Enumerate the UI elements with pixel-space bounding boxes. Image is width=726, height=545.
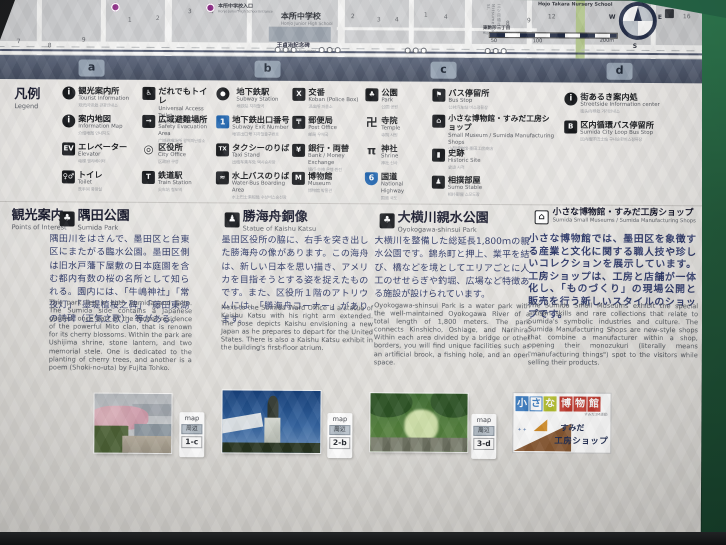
legend-jp: 地下鉄出口番号 — [232, 115, 289, 125]
legend-sub: 邮局 우체국 — [308, 132, 337, 137]
map-block-number: 4 — [395, 16, 399, 23]
section-oyokogawa-title: 大横川親水公園 Oyokogawa-shinsui Park — [398, 211, 489, 233]
oyokogawa-text-en: Oyokogawa-shinsui Park is a water park w… — [374, 301, 530, 367]
section-small-museums-title: 小さな博物館・すみだ工房ショップ Sumida Small Museums / … — [553, 208, 696, 224]
station-entrance-dots — [319, 47, 341, 53]
legend-en: Safety Evacuation Area — [158, 124, 214, 138]
legend-sub: 出租车乘车处 택시승차장 — [232, 160, 289, 165]
legend-item-elevator: EVエレベーターElevator电梯 엘리베이터 — [62, 142, 138, 164]
legend-jp: トイレ — [78, 170, 103, 180]
legend-jp: 公園 — [381, 88, 397, 98]
legend-item-train-station: T鉄道駅Train Station火车站 철도역 — [142, 171, 214, 193]
legend-jp: 小さな博物館・すみだ工房ショップ — [448, 115, 556, 134]
accessible-toilet-icon: ♿ — [142, 87, 155, 100]
map-block-number: 12 — [548, 13, 556, 20]
photo-rocks — [370, 437, 467, 452]
legend-sub: 公园 공원 — [381, 105, 397, 110]
legend-jp: 博物館 — [308, 172, 333, 182]
legend-en: Water-Bus Boarding Area — [232, 181, 290, 195]
legend-jp: 区内循環バス停留所 — [580, 121, 654, 131]
section-title-en: Oyokogawa-shinsui Park — [398, 225, 489, 234]
legend-sub: 介绍地图 안내지도 — [78, 131, 122, 136]
legend-jp: タクシーのりば — [232, 143, 289, 153]
legend-jp: 国道 — [381, 172, 427, 182]
legend-item-park: ♣公園Park公园 공원 — [365, 88, 427, 110]
map-ref-cell: 1-c — [181, 436, 202, 448]
map-reference-panel: map 周辺 2-b — [327, 413, 352, 458]
map-ref-word: map — [179, 414, 204, 422]
map-block-number: 2 — [351, 13, 355, 20]
tourist-information-icon: i — [62, 86, 75, 99]
oyokogawa-park-icon: ♣ — [380, 213, 395, 228]
legend-sub: 区内循环巴士站 구내순환버스정류장 — [580, 137, 654, 142]
oyokogawa-park-photo — [370, 393, 467, 452]
subway-station-icon — [216, 87, 229, 100]
small-museums-logo: 小 さ な 博 物 館 すみだ3M運動 ✦✦ すみだ 工房ショップ — [513, 393, 610, 453]
legend-item-temple: 卍寺院Temple寺院 사원 — [365, 116, 427, 138]
map-block-number: 8 — [48, 42, 52, 49]
legend-item-small-museum: ⌂小さな博物館・すみだ工房ショップSmall Museum / Sumida M… — [432, 115, 556, 152]
legend-item-city-office: ◎区役所City Office区政府 구청 — [142, 143, 214, 165]
legend-sub: 街头向导处 거리안내소 — [580, 109, 659, 115]
legend-item-toilet: ♀♂トイレToilet洗手间 화장실 — [62, 170, 138, 192]
legend-en: Small Museum / Sumida Manufacturing Shop… — [448, 133, 556, 147]
legend-title: 凡例 Legend — [14, 88, 40, 110]
map-label-jp: 本所中学校 — [281, 12, 321, 21]
legend-sub: 博物馆 박물관 — [308, 188, 333, 193]
map-column-tab-d: d — [607, 63, 633, 80]
legend-jp: エレベーター — [78, 142, 127, 152]
sumida-park-text-en: This park lies in both Sumida and Taito.… — [49, 298, 192, 372]
compass-west-label: W — [609, 14, 616, 21]
legend-sub: 地铁站 지하철역 — [236, 104, 278, 109]
legend-jp: 案内地図 — [78, 114, 122, 124]
station-entrance-dots — [275, 47, 297, 53]
evacuation-area-icon: → — [142, 115, 155, 128]
logo-brand-sumida: すみだ — [560, 422, 584, 433]
legend-item-taxi-stand: TXタクシーのりばTaxi Stand出租车乘车处 택시승차장 — [216, 143, 290, 165]
kaishu-statue-photo — [222, 390, 320, 453]
sumida-park-icon: ♣ — [60, 211, 75, 226]
legend-sub: 水上巴士乘船处 수상버스승선장 — [232, 194, 290, 199]
map-block-number: 7 — [17, 38, 21, 45]
legend-item-bank: ¥銀行・両替Bank / Money Exchange银行·兑换 은행·환전 — [292, 144, 362, 172]
poi-title: 観光案内 Points of Interest — [12, 209, 67, 231]
photo-base-greenery — [222, 442, 320, 453]
legend-jp: 交番 — [308, 88, 358, 98]
map-ref-word: map — [327, 415, 352, 423]
post-office-icon: 〒 — [292, 116, 305, 129]
legend-sub: 派出所 파출소 — [308, 104, 358, 109]
legend-sub: 电梯 엘리베이터 — [78, 159, 127, 164]
legend-item-subway-station: 地下鉄駅Subway Station地铁站 지하철역 — [216, 87, 290, 109]
legend-jp: 水上バスのりば — [232, 171, 290, 181]
legend-item-information-map: i案内地図Information Map介绍地图 안내지도 — [62, 114, 138, 136]
map-block-number: 9 — [527, 17, 531, 24]
legend-item-museum: M博物館Museum博物馆 박물관 — [292, 172, 362, 194]
legend-jp: 街あるき案内処 — [580, 93, 659, 103]
photo-canopy — [370, 393, 412, 417]
map-ref-cell: 2-b — [329, 437, 350, 449]
information-map-icon: i — [62, 114, 75, 127]
station-entrance-dots — [485, 48, 507, 54]
legend-en: Bank / Money Exchange — [308, 153, 362, 167]
legend-item-shrine: π神社Shrine神社 신사 — [365, 144, 427, 166]
legend-sub: 区政府 구청 — [158, 159, 186, 164]
legend-item-evacuation-area: →広域避難場所Safety Evacuation Area广域避难场所 광역피난… — [142, 115, 214, 143]
water-bus-icon: ≈ — [216, 171, 229, 184]
legend-title-jp: 凡例 — [14, 88, 40, 102]
map-scale-bar — [489, 32, 618, 38]
map-ref-area-badge: 周辺 — [181, 424, 202, 434]
legend-jp: 郵便局 — [308, 116, 337, 126]
legend-jp: バス停留所 — [448, 89, 489, 99]
loop-bus-stop-icon: B — [564, 120, 577, 133]
sumida-park-photo — [94, 394, 171, 453]
photo-statue-figure — [267, 396, 278, 419]
logo-brand-koubou: 工房ショップ — [554, 434, 608, 446]
bus-stop-icon: ⚑ — [432, 89, 445, 102]
kaishu-statue-icon: ♟ — [225, 212, 240, 227]
map-ref-area-badge: 周辺 — [473, 426, 494, 436]
map-block-number: 2 — [156, 15, 160, 22]
logo-tile: 小 — [515, 396, 528, 411]
legend-en: National Highway — [381, 182, 427, 196]
compass-needle — [634, 7, 642, 21]
compass-south-label: S — [633, 43, 637, 50]
historic-site-icon: ▮ — [432, 149, 445, 162]
logo-orange-triangle — [533, 419, 547, 431]
station-entrance-dots — [405, 47, 427, 53]
elevator-icon: EV — [62, 142, 75, 155]
map-block-number: 16 — [683, 13, 691, 20]
scale-label-200m: 200m — [600, 38, 614, 44]
map-label-en: Honjo Junior High School — [281, 22, 333, 27]
map-label-en: Hojo Takara Nursery School — [538, 2, 613, 7]
map-ref-area-badge: 周辺 — [329, 425, 350, 435]
legend-sub: 火车站 철도역 — [158, 187, 192, 192]
map-label-school-entrance: 本所中学校入口 Honjo Junior High School Entranc… — [218, 2, 273, 13]
street-information-icon: i — [564, 92, 577, 105]
legend-item-koban: X交番Koban (Police Box)派出所 파출소 — [292, 88, 362, 110]
legend-item-loop-bus-stop: B区内循環バス停留所Sumida City Loop Bus Stop区内循环巴… — [564, 120, 694, 142]
temple-icon: 卍 — [365, 116, 378, 129]
map-block-number: 3 — [188, 8, 192, 15]
map-column-band: a b c d — [0, 55, 704, 83]
legend-sub: 公共汽车站 버스정류장 — [448, 105, 489, 110]
legend-item-tourist-information: i観光案内所Tourist Information观光问讯处 관광안내소 — [62, 86, 138, 108]
museum-icon: M — [292, 172, 305, 185]
photo-bottom-edge — [0, 532, 726, 545]
legend-item-national-highway: 6国道National Highway国道 국도 — [365, 172, 427, 200]
map-reference-panel: map 周辺 3-d — [471, 414, 496, 459]
map-column-tab-a: a — [79, 59, 105, 76]
compass-east-label: E — [658, 14, 662, 21]
legend-jp: 史跡 — [448, 149, 481, 159]
logo-tile: な — [543, 396, 556, 411]
section-title-en: Sumida Small Museums / Sumida Manufactur… — [553, 218, 696, 225]
bank-exchange-icon: ¥ — [292, 144, 305, 157]
kaishu-statue-text-en: Next to the Sumida Ward Office is a stat… — [221, 303, 373, 352]
signboard-frame-right — [702, 0, 726, 545]
legend-jp: 神社 — [381, 144, 398, 154]
map-block-number: 1 — [424, 12, 428, 19]
map-block-number: 4 — [444, 14, 448, 21]
photo-stone-path — [122, 436, 171, 453]
poi-title-en: Points of Interest — [12, 223, 67, 231]
section-title-jp: 勝海舟銅像 — [243, 211, 317, 225]
legend-jp: だれでもトイレ — [158, 87, 214, 106]
map-label-en: Honjo Junior High School Entrance — [218, 9, 273, 13]
legend-sub: 相扑部屋 스모도장 — [448, 192, 482, 197]
national-highway-icon: 6 — [365, 172, 378, 185]
legend-item-bus-stop: ⚑バス停留所Bus Stop公共汽车站 버스정류장 — [432, 89, 552, 111]
poi-title-jp: 観光案内 — [12, 209, 67, 223]
map-block-number: 9 — [82, 37, 86, 44]
train-station-icon: T — [142, 171, 155, 184]
subway-station-icon — [206, 3, 215, 12]
photo-highway — [222, 413, 263, 435]
photo-canopy — [430, 393, 467, 418]
park-icon: ♣ — [365, 88, 378, 101]
map-building-icon — [665, 9, 674, 18]
legend-title-en: Legend — [14, 102, 40, 110]
section-kaishu-statue-title: 勝海舟銅像 Statue of Kaishu Katsu — [243, 211, 317, 233]
shrine-torii-icon: π — [365, 144, 378, 157]
logo-tagline: すみだ3M運動 — [584, 413, 607, 418]
section-divider — [0, 201, 703, 206]
small-museums-text-en: The Sumida Small Museums exhibit the spe… — [528, 301, 698, 367]
map-column-tab-c: c — [431, 62, 457, 79]
legend-sub: 寺院 사원 — [381, 133, 400, 138]
map-label-nursery: Hojo Takara Nursery School — [538, 2, 613, 7]
section-title-jp: 大横川親水公園 — [398, 211, 489, 225]
map-block-number: 3 — [377, 16, 381, 23]
legend-sub: 地铁出口号 지하철출구번호 — [232, 132, 289, 137]
section-sumida-park-title: 隅田公園 Sumida Park — [78, 209, 130, 231]
legend-sub: 观光问讯处 관광안내소 — [78, 103, 129, 108]
map-label-school: 本所中学校 Honjo Junior High School — [281, 11, 333, 27]
section-title-jp: 隅田公園 — [78, 209, 130, 223]
subway-exit-number-icon: 1 — [216, 115, 229, 128]
sumo-stable-icon: ♟ — [432, 176, 445, 189]
oyokogawa-text-jp: 大横川を整備した総延長1,800ｍの親水公園です。錦糸町と押上、業平を結び、橋な… — [374, 235, 529, 302]
legend-item-water-bus: ≈水上バスのりばWater-Bus Boarding Area水上巴士乘船处 수… — [216, 171, 290, 199]
logo-tile: 館 — [587, 397, 600, 412]
map-ref-word: map — [471, 416, 496, 424]
toilet-icon: ♀♂ — [62, 170, 75, 183]
scale-label-100: 100 — [533, 38, 543, 44]
legend-jp: 銀行・両替 — [308, 144, 362, 154]
legend-sub: 国道 국도 — [381, 195, 427, 200]
legend-jp: 地下鉄駅 — [236, 87, 278, 97]
map-reference-panel: map 周辺 1-c — [179, 412, 204, 457]
legend-item-subway-exit-number: 1地下鉄出口番号Subway Exit Number地铁出口号 지하철출구번호 — [216, 115, 290, 137]
legend-sub: 史迹 사적 — [448, 165, 481, 170]
scale-label-50: 50 — [491, 38, 497, 44]
logo-sparkles: ✦✦ — [517, 427, 527, 433]
map-column-tab-b: b — [255, 61, 281, 78]
map-block-number: 1 — [128, 17, 132, 24]
legend-item-post-office: 〒郵便局Post Office邮局 우체국 — [292, 116, 362, 138]
compass-rose-icon — [619, 2, 657, 40]
small-museum-house-icon: ⌂ — [535, 210, 549, 224]
information-board: 1 2 3 4 5 7 8 9 2 3 4 1 4 8 9 12 16 本所中学… — [0, 0, 704, 541]
legend-item-street-information: i街あるき案内処Streetside Information center街头向… — [564, 92, 694, 114]
section-title-en: Statue of Kaishu Katsu — [243, 224, 317, 232]
legend-jp: 広域避難場所 — [158, 115, 214, 125]
map-ref-cell: 3-d — [473, 438, 494, 450]
legend-jp: 観光案内所 — [78, 86, 129, 96]
legend-sub: 洗手间 화장실 — [78, 187, 103, 192]
legend-jp: 鉄道駅 — [158, 171, 192, 181]
small-museum-icon: ⌂ — [432, 115, 445, 128]
legend-item-historic-site: ▮史跡Historic Site史迹 사적 — [432, 149, 552, 171]
area-map: 1 2 3 4 5 7 8 9 2 3 4 1 4 8 9 12 16 本所中学… — [0, 0, 704, 59]
city-office-icon: ◎ — [142, 143, 155, 156]
section-title-en: Sumida Park — [78, 223, 130, 231]
legend-item-sumo-stable: ♟相撲部屋Sumo Stable相扑部屋 스모도장 — [432, 176, 552, 198]
legend-jp: 相撲部屋 — [448, 176, 482, 186]
legend-sub: 神社 신사 — [381, 161, 398, 166]
subway-station-icon — [111, 3, 120, 12]
police-box-icon: X — [292, 88, 305, 101]
taxi-stand-icon: TX — [216, 143, 229, 156]
logo-tile: 物 — [573, 397, 586, 412]
legend-jp: 区役所 — [158, 143, 186, 153]
legend-jp: 寺院 — [381, 116, 400, 126]
logo-tile: さ — [529, 396, 542, 411]
logo-tile: 博 — [559, 396, 572, 411]
